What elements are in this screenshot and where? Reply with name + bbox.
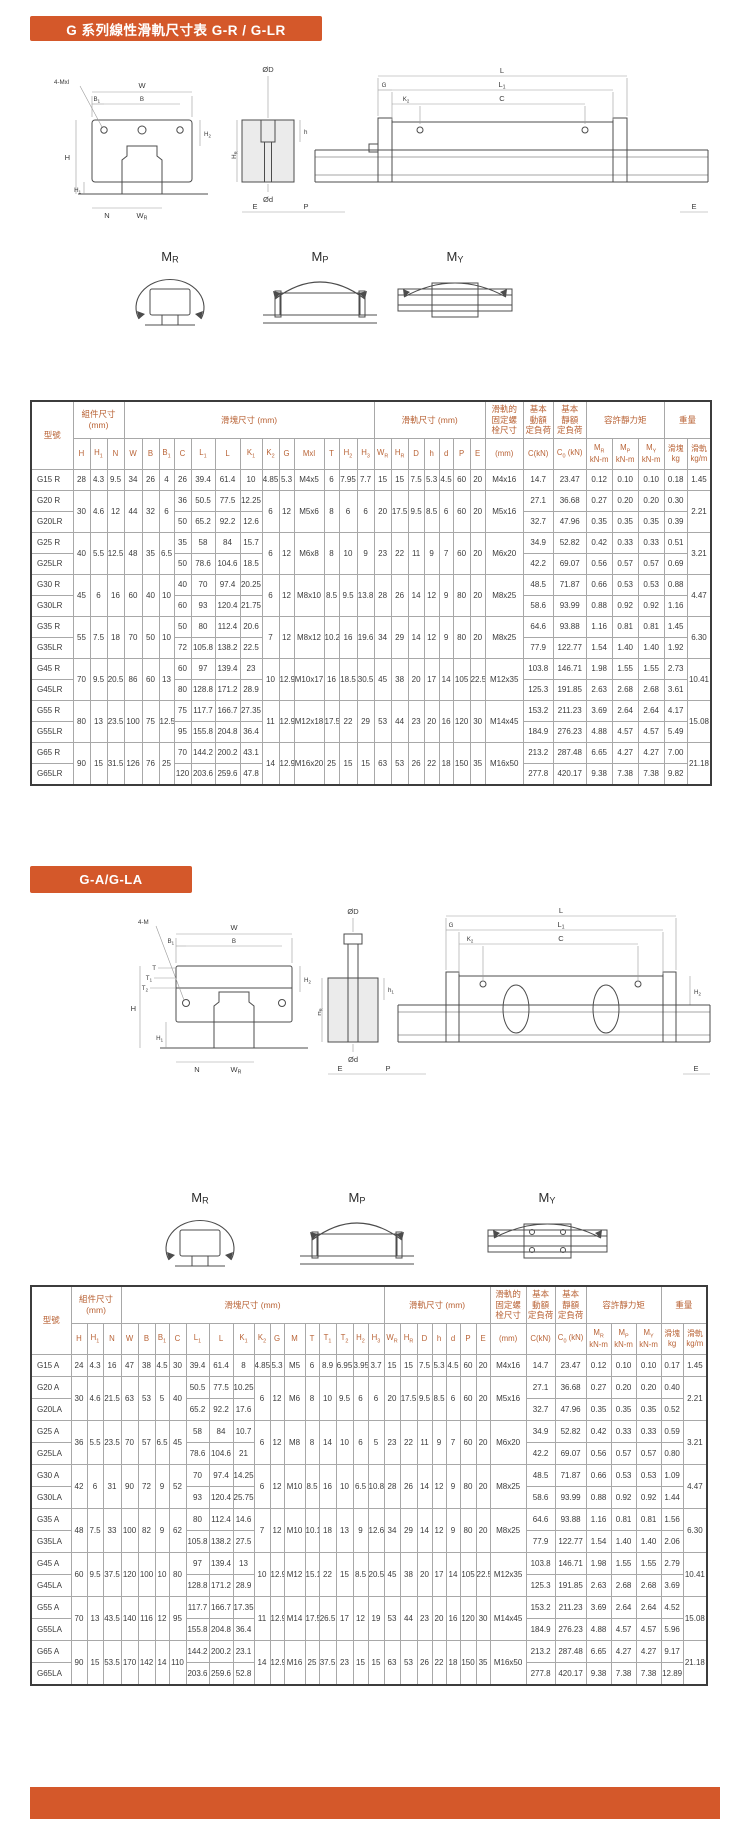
block-dim-cell: 6.95 (336, 1355, 353, 1377)
block-dim-cell: 12.6 (368, 1509, 384, 1553)
load-rating-cell: 0.27 (586, 1377, 611, 1399)
block-dim-cell: 105.8 (191, 638, 215, 659)
col-header: G (270, 1324, 284, 1355)
model-cell: G35 R (31, 617, 73, 638)
model-cell: G55 A (31, 1597, 71, 1619)
rail-dim-cell: 23 (374, 533, 391, 575)
model-cell: G45 A (31, 1553, 71, 1575)
assembly-dim-cell: 7.5 (90, 617, 107, 659)
rail-dim-cell: 9.5 (417, 1377, 432, 1421)
rail-dim-cell: 22 (424, 743, 439, 786)
load-rating-cell: 2.63 (586, 680, 612, 701)
assembly-dim-cell: 13 (159, 659, 174, 701)
model-cell: G65LR (31, 764, 73, 786)
load-rating-cell: 191.85 (553, 680, 586, 701)
assembly-dim-cell: 9 (155, 1509, 169, 1553)
col-header: N (103, 1324, 121, 1355)
rail-dim-cell: 6 (446, 1377, 460, 1421)
rail-weight-cell: 3.21 (683, 1421, 707, 1465)
bolt-size-cell: M12x35 (485, 659, 523, 701)
assembly-dim-cell: 31.5 (107, 743, 124, 786)
col-header: K1 (240, 439, 262, 470)
dim-label-e: E (337, 1064, 342, 1073)
block-dim-cell: 12 (270, 1377, 284, 1421)
block-dim-cell: 14.25 (233, 1465, 254, 1487)
rail-dim-cell: 14 (439, 659, 453, 701)
model-cell: G35LA (31, 1531, 71, 1553)
rail-dim-cell: 23 (417, 1597, 432, 1641)
model-cell: G30LR (31, 596, 73, 617)
dim-label-h1: H1 (74, 187, 81, 195)
rail-dim-cell: 45 (374, 659, 391, 701)
block-dim-cell: 36.4 (233, 1619, 254, 1641)
block-dim-cell: 19 (368, 1597, 384, 1641)
load-rating-cell: 47.96 (553, 512, 586, 533)
assembly-dim-cell: 53 (138, 1377, 155, 1421)
load-rating-cell: 4.57 (638, 722, 664, 743)
dim-label-w: W (138, 81, 146, 90)
bolt-size-cell: M16x50 (490, 1641, 526, 1686)
col-header: D (408, 439, 424, 470)
block-dim-cell: M6x8 (294, 533, 324, 575)
block-dim-cell: 84 (209, 1421, 233, 1443)
load-rating-cell: 0.51 (664, 533, 687, 554)
block-dim-cell: 155.8 (186, 1619, 209, 1641)
load-rating-cell: 5.96 (661, 1619, 683, 1641)
assembly-dim-cell: 4.6 (90, 491, 107, 533)
assembly-dim-cell: 80 (169, 1553, 186, 1597)
bolt-size-cell: M5x16 (490, 1377, 526, 1421)
rail-dim-cell: 120 (453, 701, 470, 743)
assembly-dim-cell: 12.5 (159, 701, 174, 743)
front-view-drawing-1: W B B1 4-Mxl H H1 H2 N WR (50, 72, 235, 232)
rail-dim-cell: 26 (391, 575, 408, 617)
assembly-dim-cell: 60 (124, 575, 142, 617)
rail-dim-cell: 63 (374, 743, 391, 786)
rail-dim-cell: 30 (476, 1597, 490, 1641)
load-rating-cell: 0.92 (636, 1487, 661, 1509)
rail-dim-cell: 14 (408, 575, 424, 617)
dim-label-hr: HR (318, 1008, 324, 1016)
block-dim-cell: 20.25 (240, 575, 262, 596)
col-header: K1 (233, 1324, 254, 1355)
load-rating-cell: 3.69 (661, 1575, 683, 1597)
col-header: H (73, 439, 90, 470)
block-dim-cell: 104.6 (215, 554, 240, 575)
assembly-dim-cell: 86 (124, 659, 142, 701)
block-dim-cell: 17.5 (324, 701, 339, 743)
col-header: H1 (87, 1324, 103, 1355)
col-header: MYkN-m (636, 1324, 661, 1355)
block-dim-cell: 20.5 (368, 1553, 384, 1597)
load-rating-cell: 0.12 (586, 470, 612, 491)
block-dim-cell: 9.5 (339, 575, 357, 617)
load-rating-cell: 2.68 (612, 680, 638, 701)
rail-dim-cell: 12 (432, 1509, 446, 1553)
rail-dim-cell: 22.5 (470, 659, 485, 701)
load-rating-cell: 2.06 (661, 1531, 683, 1553)
block-dim-cell: 10 (336, 1465, 353, 1509)
rail-weight-cell: 1.45 (687, 470, 711, 491)
assembly-dim-cell: 170 (121, 1641, 138, 1686)
rail-dim-cell: 4.5 (439, 470, 453, 491)
col-header: 滑軌kg/m (683, 1324, 707, 1355)
block-dim-cell: 26.5 (319, 1597, 336, 1641)
block-dim-cell: 77.5 (209, 1377, 233, 1399)
rail-dim-cell: 80 (453, 575, 470, 617)
assembly-dim-cell: 10 (159, 575, 174, 617)
col-header: H3 (357, 439, 374, 470)
block-dim-cell: 166.7 (215, 701, 240, 722)
assembly-dim-cell: 6 (87, 1465, 103, 1509)
rail-dim-cell: 28 (374, 575, 391, 617)
block-dim-cell: 13 (336, 1509, 353, 1553)
col-header: D (417, 1324, 432, 1355)
load-rating-cell: 64.6 (526, 1509, 555, 1531)
rail-dim-cell: 80 (453, 617, 470, 659)
model-cell: G65 R (31, 743, 73, 764)
block-dim-cell: 200.2 (215, 743, 240, 764)
model-cell: G25LR (31, 554, 73, 575)
drawings-section-1: W B B1 4-Mxl H H1 H2 N WR (30, 52, 720, 392)
load-rating-cell: 14.7 (526, 1355, 555, 1377)
rail-outline (122, 146, 162, 194)
block-dim-cell: M6 (284, 1377, 305, 1421)
rail-dim-cell: 14 (417, 1465, 432, 1509)
assembly-dim-cell: 10 (159, 617, 174, 659)
rail-weight-cell: 4.47 (687, 575, 711, 617)
model-cell: G35 A (31, 1509, 71, 1531)
col-header: L (215, 439, 240, 470)
load-rating-cell: 287.48 (555, 1641, 586, 1663)
block-dim-cell: 12.6 (240, 512, 262, 533)
rail-dim-cell: 60 (460, 1377, 476, 1421)
load-rating-cell: 0.20 (638, 491, 664, 512)
col-header: C0 (kN) (553, 439, 586, 470)
block-dim-cell: 10 (319, 1377, 336, 1421)
load-rating-cell: 0.53 (612, 575, 638, 596)
block-dim-cell: 17.35 (233, 1597, 254, 1619)
moment-mp-label: MP (312, 249, 329, 265)
load-rating-cell: 12.89 (661, 1663, 683, 1686)
rail-dim-cell: 53 (400, 1641, 417, 1686)
assembly-dim-cell: 80 (73, 701, 90, 743)
bolt-size-cell: M4x16 (485, 470, 523, 491)
block-dim-cell: 18.5 (240, 554, 262, 575)
block-dim-cell: 75 (174, 701, 191, 722)
bolt-size-cell: M5x16 (485, 491, 523, 533)
block-dim-cell: 12 (270, 1465, 284, 1509)
load-rating-cell: 52.82 (553, 533, 586, 554)
load-rating-cell: 2.64 (636, 1597, 661, 1619)
load-rating-cell: 47.96 (555, 1399, 586, 1421)
block-dim-cell: 18 (319, 1509, 336, 1553)
bolt-size-cell: M8x25 (485, 575, 523, 617)
rail-dim-cell: 20 (476, 1509, 490, 1553)
dim-label-t2: T2 (142, 985, 149, 993)
block-dim-cell: 112.4 (209, 1509, 233, 1531)
block-dim-cell: 30.5 (357, 659, 374, 701)
load-rating-cell: 1.16 (664, 596, 687, 617)
load-rating-cell: 1.98 (586, 1553, 611, 1575)
bolt-size-cell: M16x50 (485, 743, 523, 786)
load-rating-cell: 0.39 (664, 512, 687, 533)
model-cell: G45LR (31, 680, 73, 701)
block-dim-cell: 84 (215, 533, 240, 554)
assembly-dim-cell: 5.5 (90, 533, 107, 575)
rail-weight-cell: 10.41 (683, 1553, 707, 1597)
block-dim-cell: 6.5 (353, 1465, 368, 1509)
section2-banner: G-A/G-LA (30, 866, 192, 893)
assembly-dim-cell: 100 (138, 1553, 155, 1597)
load-rating-cell: 0.40 (661, 1377, 683, 1399)
col-group-header: 滑軌尺寸 (mm) (374, 401, 485, 439)
load-rating-cell: 153.2 (526, 1597, 555, 1619)
block-dim-cell: 120.4 (215, 596, 240, 617)
dim-label-g: G (382, 82, 387, 89)
load-rating-cell: 58.6 (526, 1487, 555, 1509)
assembly-dim-cell: 6 (159, 491, 174, 533)
block-dim-cell: 50 (174, 554, 191, 575)
block-dim-cell: 18.5 (339, 659, 357, 701)
dim-label-e: E (252, 202, 257, 211)
rail-dim-cell: 17.5 (400, 1377, 417, 1421)
rail-dim-cell: 38 (400, 1553, 417, 1597)
load-rating-cell: 0.10 (636, 1355, 661, 1377)
block-dim-cell: 65.2 (186, 1399, 209, 1421)
block-dim-cell: 5.3 (270, 1355, 284, 1377)
block-dim-cell: M16 (284, 1641, 305, 1686)
col-header-model: 型號 (31, 401, 73, 470)
col-group-header: 基本靜額定負荷 (555, 1286, 586, 1324)
assembly-dim-cell: 36 (71, 1421, 87, 1465)
block-dim-cell: 12.9 (270, 1553, 284, 1597)
load-rating-cell: 2.68 (638, 680, 664, 701)
load-rating-cell: 1.56 (661, 1509, 683, 1531)
rail-dim-cell: 7 (446, 1421, 460, 1465)
rail-weight-cell: 21.18 (683, 1641, 707, 1686)
assembly-dim-cell: 100 (121, 1509, 138, 1553)
load-rating-cell: 4.17 (664, 701, 687, 722)
block-dim-cell: 12 (279, 617, 294, 659)
load-rating-cell: 213.2 (523, 743, 553, 764)
load-rating-cell: 4.27 (638, 743, 664, 764)
col-header: K2 (262, 439, 279, 470)
rail-dim-cell: 20 (470, 470, 485, 491)
load-rating-cell: 69.07 (555, 1443, 586, 1465)
block-dim-cell: 14 (319, 1421, 336, 1465)
load-rating-cell: 1.55 (611, 1553, 636, 1575)
block-dim-cell: 10.7 (233, 1421, 254, 1443)
load-rating-cell: 0.57 (611, 1443, 636, 1465)
block-dim-cell: M10 (284, 1509, 305, 1553)
block-dim-cell: 29 (357, 701, 374, 743)
load-rating-cell: 34.9 (526, 1421, 555, 1443)
load-rating-cell: 4.88 (586, 722, 612, 743)
load-rating-cell: 0.81 (611, 1509, 636, 1531)
load-rating-cell: 1.40 (638, 638, 664, 659)
spec-table-1-wrap: 型號組件尺寸(mm)滑塊尺寸 (mm)滑軌尺寸 (mm)滑軌的固定螺栓尺寸基本動… (30, 400, 712, 786)
block-dim-cell: 15 (339, 743, 357, 786)
dim-label-hole-h: h1 (388, 987, 394, 995)
rail-dim-cell: 20 (476, 1377, 490, 1421)
rail-dim-cell: 5.3 (424, 470, 439, 491)
bolt-size-cell: M14x45 (485, 701, 523, 743)
block-dim-cell: 200.2 (209, 1641, 233, 1663)
rail-dim-cell: 26 (417, 1641, 432, 1686)
block-dim-cell: 15 (368, 1641, 384, 1686)
assembly-dim-cell: 60 (71, 1553, 87, 1597)
model-cell: G45 R (31, 659, 73, 680)
assembly-dim-cell: 70 (124, 617, 142, 659)
screw-callout: 4-Mxl (54, 79, 69, 86)
rail-dim-cell: 20 (432, 1597, 446, 1641)
dim-label-e2: E (693, 1064, 698, 1073)
block-dim-cell: 52.8 (233, 1663, 254, 1686)
model-cell: G35LR (31, 638, 73, 659)
assembly-dim-cell: 10 (155, 1553, 169, 1597)
col-header: C (169, 1324, 186, 1355)
block-dim-cell: 26 (174, 470, 191, 491)
rail-dim-cell: 38 (391, 659, 408, 701)
load-rating-cell: 93.88 (555, 1509, 586, 1531)
assembly-dim-cell: 4.6 (87, 1377, 103, 1421)
block-dim-cell: 12.9 (270, 1597, 284, 1641)
load-rating-cell: 32.7 (523, 512, 553, 533)
rail-dim-cell: 34 (374, 617, 391, 659)
col-header: C(kN) (526, 1324, 555, 1355)
load-rating-cell: 0.20 (636, 1377, 661, 1399)
block-dim-cell: 128.8 (191, 680, 215, 701)
dim-label-h: H (65, 153, 70, 162)
block-dim-cell: 171.2 (209, 1575, 233, 1597)
load-rating-cell: 0.35 (612, 512, 638, 533)
block-dim-cell: 6 (305, 1355, 319, 1377)
load-rating-cell: 0.81 (636, 1509, 661, 1531)
block-dim-cell: 7.7 (357, 470, 374, 491)
rail-dim-cell: 9 (424, 533, 439, 575)
block-dim-cell: 15 (353, 1641, 368, 1686)
model-cell: G15 R (31, 470, 73, 491)
col-group-header: 組件尺寸(mm) (73, 401, 124, 439)
assembly-dim-cell: 110 (169, 1641, 186, 1686)
assembly-dim-cell: 42 (71, 1465, 87, 1509)
block-dim-cell: 50 (174, 512, 191, 533)
rail-dim-cell: 9 (446, 1509, 460, 1553)
dim-label-c: C (558, 934, 564, 943)
rail-dim-cell: 22 (391, 533, 408, 575)
assembly-dim-cell: 60 (142, 659, 159, 701)
block-dim-cell: 12 (279, 533, 294, 575)
load-rating-cell: 0.10 (611, 1355, 636, 1377)
dim-label-wr: WR (231, 1065, 242, 1076)
block-dim-cell: 23.1 (233, 1641, 254, 1663)
block-dim-cell: 6 (339, 491, 357, 533)
assembly-dim-cell: 5.5 (87, 1421, 103, 1465)
col-group-header: 組件尺寸(mm) (71, 1286, 121, 1324)
rail-dim-cell: 26 (408, 743, 424, 786)
col-header: WR (384, 1324, 400, 1355)
col-header: T (305, 1324, 319, 1355)
rail-dim-cell: 35 (470, 743, 485, 786)
bolt-size-cell: M8x25 (490, 1465, 526, 1509)
col-header: H2 (339, 439, 357, 470)
block-dim-cell: 6 (368, 1377, 384, 1421)
assembly-dim-cell: 82 (138, 1509, 155, 1553)
rail-dim-cell: 20 (424, 701, 439, 743)
rail-dim-cell: 15 (374, 470, 391, 491)
load-rating-cell: 58.6 (523, 596, 553, 617)
load-rating-cell: 184.9 (523, 722, 553, 743)
dim-label-b1: B1 (167, 938, 174, 946)
block-dim-cell: 144.2 (186, 1641, 209, 1663)
load-rating-cell: 0.35 (586, 1399, 611, 1421)
col-header: MYkN-m (638, 439, 664, 470)
load-rating-cell: 0.59 (661, 1421, 683, 1443)
rail-dim-cell: 15 (391, 470, 408, 491)
load-rating-cell: 23.47 (553, 470, 586, 491)
dim-label-w: W (230, 923, 238, 932)
assembly-dim-cell: 40 (73, 533, 90, 575)
load-rating-cell: 9.17 (661, 1641, 683, 1663)
block-dim-cell: M4x5 (294, 470, 324, 491)
col-header: h (432, 1324, 446, 1355)
assembly-dim-cell: 70 (73, 659, 90, 701)
rail-weight-cell: 15.08 (683, 1597, 707, 1641)
col-header: H (71, 1324, 87, 1355)
block-dim-cell: M16x20 (294, 743, 324, 786)
assembly-dim-cell: 142 (138, 1641, 155, 1686)
assembly-dim-cell: 14 (155, 1641, 169, 1686)
assembly-dim-cell: 4.3 (90, 470, 107, 491)
block-dim-cell: 8.5 (324, 575, 339, 617)
load-rating-cell: 0.57 (638, 554, 664, 575)
front-view-drawing-2: W B B1 4-M T T1 T2 H H1 H2 N WR (130, 908, 330, 1098)
block-dim-cell: 117.7 (191, 701, 215, 722)
block-dim-cell: 203.6 (186, 1663, 209, 1686)
load-rating-cell: 153.2 (523, 701, 553, 722)
block-dim-cell: 50.5 (191, 491, 215, 512)
load-rating-cell: 2.64 (612, 701, 638, 722)
load-rating-cell: 1.16 (586, 617, 612, 638)
block-dim-cell: 11 (262, 701, 279, 743)
block-dim-cell: 6 (254, 1421, 270, 1465)
rail-dim-cell: 23 (384, 1421, 400, 1465)
load-rating-cell: 277.8 (523, 764, 553, 786)
block-dim-cell: 21.75 (240, 596, 262, 617)
load-rating-cell: 6.65 (586, 1641, 611, 1663)
block-dim-cell: 8.5 (305, 1465, 319, 1509)
col-header: C(kN) (523, 439, 553, 470)
load-rating-cell: 0.92 (638, 596, 664, 617)
block-dim-cell: 70 (186, 1465, 209, 1487)
assembly-dim-cell: 6 (90, 575, 107, 617)
block-dim-cell: 22 (319, 1553, 336, 1597)
rail-dim-cell: 80 (460, 1509, 476, 1553)
load-rating-cell: 27.1 (526, 1377, 555, 1399)
rail-dim-cell: 20 (408, 659, 424, 701)
block-dim-cell: M12x18 (294, 701, 324, 743)
block-dim-cell: 155.8 (191, 722, 215, 743)
rail-weight-cell: 1.45 (683, 1355, 707, 1377)
assembly-dim-cell: 90 (73, 743, 90, 786)
bolt-size-cell: M12x35 (490, 1553, 526, 1597)
block-dim-cell: 61.4 (215, 470, 240, 491)
load-rating-cell: 103.8 (523, 659, 553, 680)
col-group-header: 基本靜額定負荷 (553, 401, 586, 439)
block-dim-cell: 22.5 (240, 638, 262, 659)
block-dim-cell: 12 (279, 575, 294, 617)
